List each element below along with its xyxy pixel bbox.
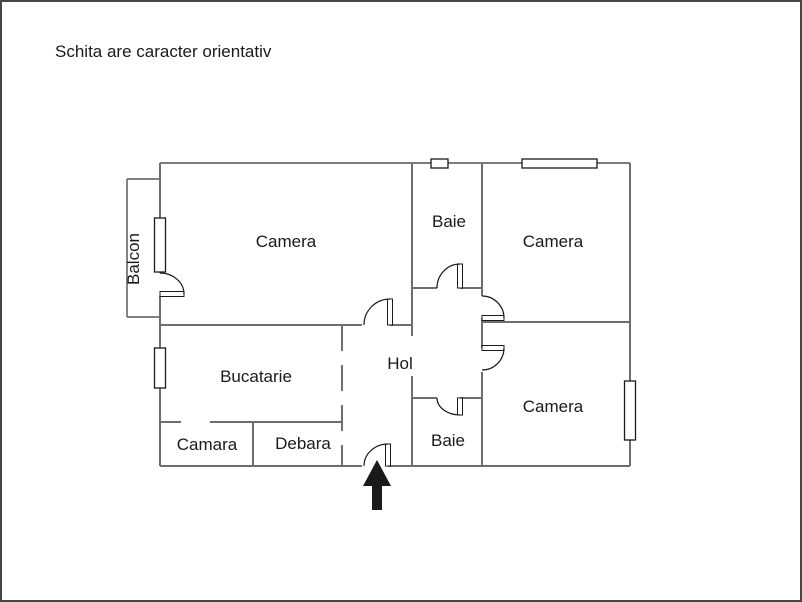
room-label-bucatarie: Bucatarie (220, 367, 292, 386)
camera-top-right-door-leaf (482, 316, 504, 321)
balcony-door-leaf (160, 292, 184, 297)
balcony-window (155, 218, 166, 272)
entrance-door-leaf (386, 444, 391, 466)
room-label-camera-top-right: Camera (523, 232, 584, 251)
camera-bottom-right-window (625, 381, 636, 440)
floor-plan: Schita are caracter orientativ (0, 0, 802, 602)
page-border (1, 1, 801, 601)
camera-bottom-right-door-arc (482, 348, 504, 370)
outer-walls (160, 163, 630, 466)
disclaimer-title: Schita are caracter orientativ (55, 42, 272, 61)
room-label-baie-bottom: Baie (431, 431, 465, 450)
balcony-door-arc (160, 273, 184, 294)
room-label-hol: Hol (387, 354, 413, 373)
baie-bottom-door-arc (437, 398, 460, 415)
camera-top-right-door-arc (482, 296, 504, 318)
interior-walls (160, 163, 630, 466)
camera-top-left-door-arc (364, 299, 390, 325)
room-label-camara: Camara (177, 435, 238, 454)
baie-top-window (431, 159, 448, 168)
baie-top-door-leaf (458, 264, 463, 288)
camera-bottom-right-door-leaf (482, 346, 504, 351)
room-labels: Balcon Camera Baie Camera Bucatarie Hol … (124, 212, 584, 454)
room-label-baie-top: Baie (432, 212, 466, 231)
baie-top-door-arc (437, 264, 460, 288)
room-label-camera-top-left: Camera (256, 232, 317, 251)
room-label-camera-bottom-right: Camera (523, 397, 584, 416)
camera-top-left-door-leaf (388, 299, 393, 325)
room-label-debara: Debara (275, 434, 331, 453)
entrance-arrow-icon (363, 460, 391, 510)
bucatarie-window (155, 348, 166, 388)
baie-bottom-door-leaf (458, 398, 463, 415)
camera-top-right-window (522, 159, 597, 168)
room-label-balcon: Balcon (124, 233, 143, 285)
